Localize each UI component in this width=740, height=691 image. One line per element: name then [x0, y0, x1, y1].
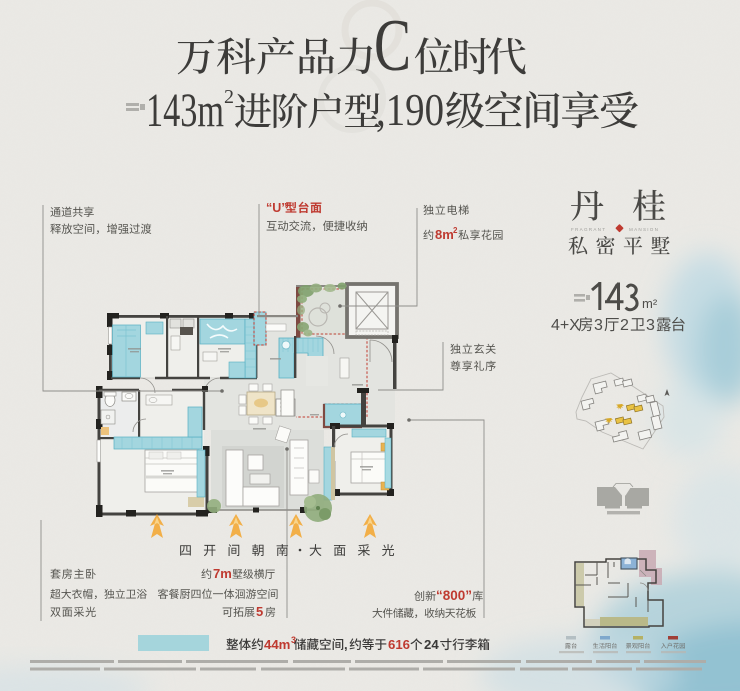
svg-text:2: 2: [620, 317, 629, 334]
svg-text:8m: 8m: [435, 227, 454, 242]
svg-text:C: C: [374, 5, 411, 87]
svg-text:FRAGRANT: FRAGRANT: [571, 227, 606, 232]
svg-text:“U”: “U”: [266, 201, 288, 215]
svg-text:2: 2: [453, 226, 458, 235]
svg-text:MANSION: MANSION: [629, 227, 659, 232]
svg-text:44m: 44m: [264, 637, 290, 652]
svg-text:,190: ,190: [376, 84, 444, 135]
svg-text:3: 3: [646, 317, 655, 334]
svg-text:7m: 7m: [213, 566, 232, 581]
svg-text:4+X: 4+X: [551, 317, 580, 334]
svg-text:5: 5: [256, 604, 263, 619]
svg-text:m²: m²: [642, 296, 658, 311]
svg-text:143m: 143m: [146, 84, 224, 137]
svg-text:2: 2: [224, 86, 234, 108]
svg-text:3: 3: [594, 317, 603, 334]
svg-text:616: 616: [388, 637, 410, 652]
svg-text:“800”: “800”: [436, 588, 472, 603]
svg-text:,: ,: [344, 637, 348, 652]
svg-text:24: 24: [424, 637, 439, 652]
